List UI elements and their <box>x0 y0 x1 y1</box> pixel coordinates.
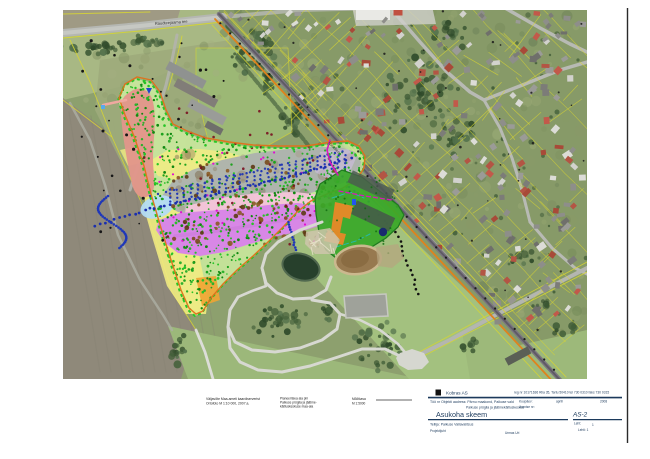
svg-text:Kuupäev:: Kuupäev: <box>519 400 533 404</box>
svg-text:Tellija: Paikuse Vallavalitsus: Tellija: Paikuse Vallavalitsus <box>430 423 474 427</box>
svg-text:Urmas Uri: Urmas Uri <box>505 431 520 435</box>
svg-text:Mõõtkava: Mõõtkava <box>352 397 366 401</box>
svg-text:Kobras AS: Kobras AS <box>446 391 468 396</box>
svg-text:Väljavõte Maa-ameti kaardiserv: Väljavõte Maa-ameti kaardiserverist <box>206 397 260 401</box>
svg-text:Asukoha skeem: Asukoha skeem <box>436 410 487 419</box>
svg-text:2008: 2008 <box>600 400 607 404</box>
svg-text:käitluskeskuse maa-ala: käitluskeskuse maa-ala <box>280 405 313 409</box>
svg-text:AS-2: AS-2 <box>572 412 588 419</box>
svg-text:Paikuse prügila ja jäätmekäitl: Paikuse prügila ja jäätmekäitluskeskus <box>466 406 524 410</box>
svg-text:Joonise nr:: Joonise nr: <box>519 405 535 409</box>
svg-text:Projektijuht: Projektijuht <box>430 429 446 433</box>
svg-text:Ortofoto M 1:10 000, 2007.a.: Ortofoto M 1:10 000, 2007.a. <box>206 402 249 406</box>
svg-text:aprill: aprill <box>556 400 563 404</box>
svg-text:Leht:: Leht: <box>574 422 581 426</box>
svg-text:Lehti: 1: Lehti: 1 <box>578 428 589 432</box>
svg-text:Töö nr Objekti aadress: Pärnu: Töö nr Objekti aadress: Pärnu maakond, P… <box>430 400 514 404</box>
svg-text:M 1:5000: M 1:5000 <box>352 402 366 406</box>
svg-text:1: 1 <box>592 423 594 427</box>
svg-text:reg nr 10171636 Riia 35, Tar: reg nr 10171636 Riia 35, Tartu 50410 tel… <box>514 391 609 395</box>
